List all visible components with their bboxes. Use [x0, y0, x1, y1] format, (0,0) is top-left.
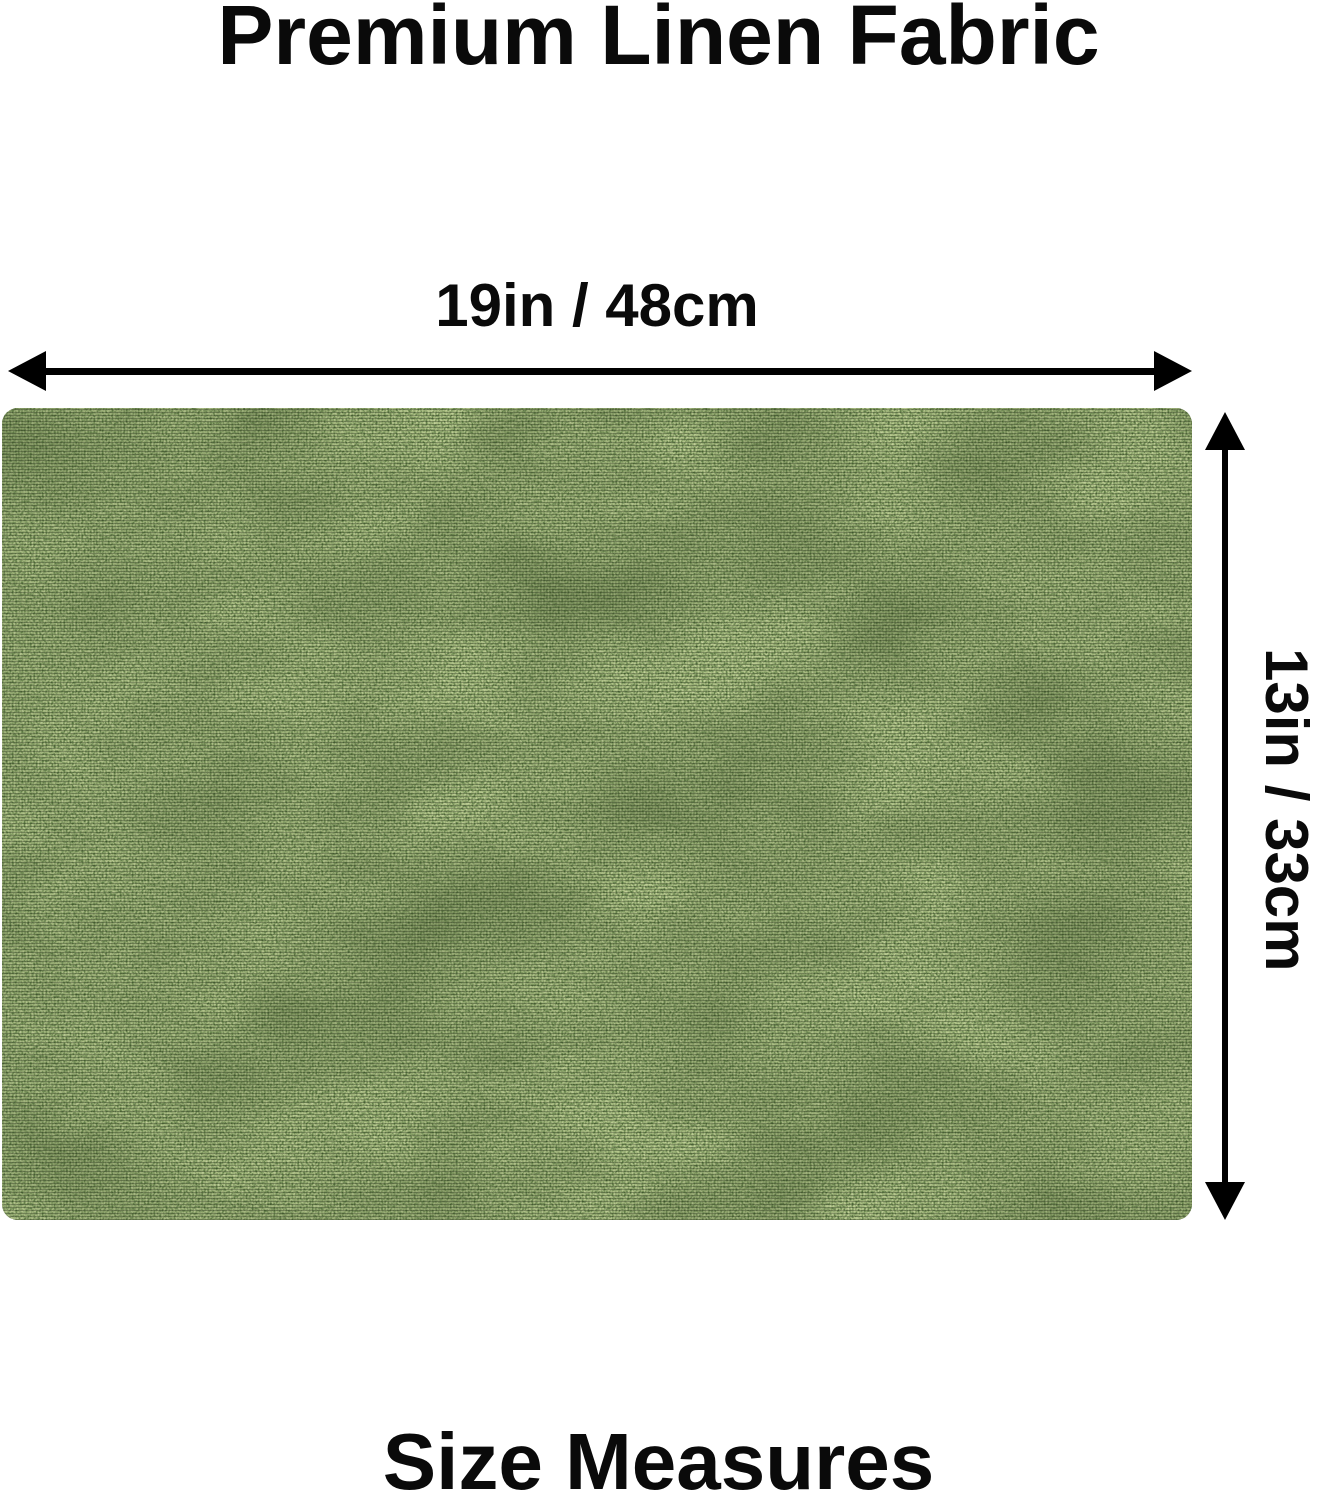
dimension-line: [38, 368, 1162, 375]
width-dimension-arrow: [8, 351, 1192, 391]
dimension-line: [1222, 442, 1228, 1190]
footer-title: Size Measures: [0, 1422, 1317, 1500]
linen-fabric-swatch: [2, 408, 1192, 1220]
height-dimension-label: 13in / 33cm: [1256, 648, 1316, 972]
width-dimension-label: 19in / 48cm: [2, 276, 1192, 336]
product-size-diagram: Premium Linen Fabric 19in / 48cm: [0, 0, 1317, 1500]
page-title: Premium Linen Fabric: [0, 0, 1317, 81]
arrowhead-down-icon: [1205, 1182, 1245, 1220]
arrowhead-right-icon: [1154, 351, 1192, 391]
fabric-texture: [2, 408, 1192, 1220]
height-dimension-arrow: [1205, 412, 1245, 1220]
